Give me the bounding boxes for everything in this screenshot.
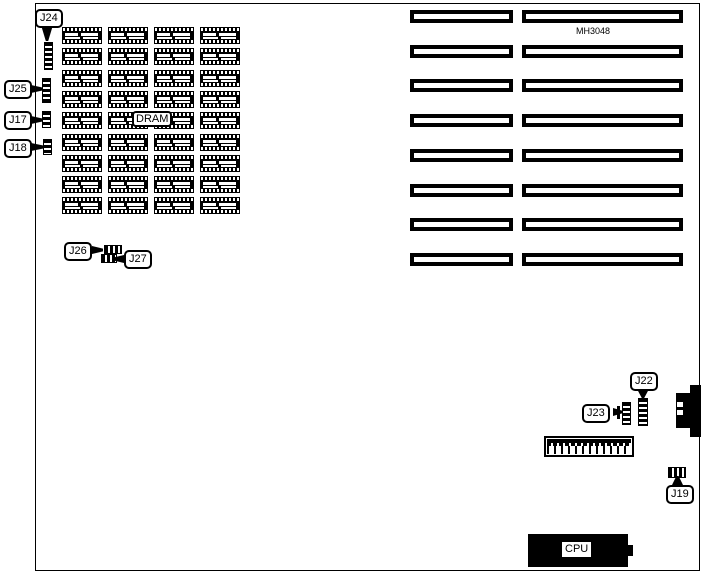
dram-chip-slot [157, 37, 172, 39]
dram-chip-slot [175, 144, 190, 146]
dram-chip-slot [81, 76, 98, 79]
dram-chip-slot [111, 33, 124, 36]
dram-chip-slot [83, 122, 98, 124]
expansion-slot-long [522, 184, 683, 197]
dram-chip [62, 27, 102, 44]
dram-chip-slot [175, 165, 190, 167]
dram-chip-slot [175, 186, 190, 188]
cpu-chip: CPU [528, 534, 628, 567]
dram-chip-slot [65, 54, 78, 57]
dram-chip-slot [127, 203, 144, 206]
keyboard-connector-bottom-tab [690, 426, 701, 437]
dram-chip-slot [81, 97, 98, 100]
dram-chip [154, 176, 194, 193]
jumper-label-j23: J23 [582, 404, 610, 423]
jumper-label-j26: J26 [64, 242, 92, 261]
dram-chip-slot [65, 118, 78, 121]
dram-chip-slot [111, 76, 124, 79]
dram-chip [108, 48, 148, 65]
dram-chip-slot [157, 165, 172, 167]
expansion-slot-short [410, 184, 513, 197]
dram-chip-slot [65, 186, 80, 188]
dram-chip-slot [173, 76, 190, 79]
dram-chip-slot [203, 161, 216, 164]
dram-chip-slot [221, 165, 236, 167]
dram-chip-slot [83, 165, 98, 167]
dram-chip-slot [65, 161, 78, 164]
dram-chip-slot [157, 186, 172, 188]
dram-chip-slot [175, 37, 190, 39]
expansion-slot-long [522, 218, 683, 231]
dram-label: DRAM [132, 111, 172, 127]
dram-chip-slot [127, 33, 144, 36]
dram-chip-slot [65, 182, 78, 185]
dram-chip-slot [203, 118, 216, 121]
expansion-slot-short [410, 218, 513, 231]
dram-chip-slot [83, 186, 98, 188]
expansion-slot-long [522, 253, 683, 266]
dram-chip-slot [203, 37, 218, 39]
dram-chip-slot [219, 118, 236, 121]
jumper-label-j27: J27 [124, 250, 152, 269]
dram-chip-slot [221, 186, 236, 188]
dram-chip-slot [219, 203, 236, 206]
dram-chip-slot [157, 101, 172, 103]
dram-chip-slot [221, 144, 236, 146]
dram-chip-slot [157, 140, 170, 143]
dram-chip-slot [83, 144, 98, 146]
dram-chip-slot [81, 161, 98, 164]
dram-chip-slot [111, 54, 124, 57]
dram-chip-slot [111, 101, 126, 103]
dram-chip-slot [157, 203, 170, 206]
dram-chip-slot [111, 122, 126, 124]
dram-chip [108, 134, 148, 151]
dram-chip-slot [127, 76, 144, 79]
dram-chip-slot [127, 182, 144, 185]
dram-chip-slot [219, 161, 236, 164]
expansion-slot-long [522, 79, 683, 92]
dram-chip-slot [157, 207, 172, 209]
dram-chip [108, 27, 148, 44]
dram-chip [200, 134, 240, 151]
dram-chip-slot [175, 207, 190, 209]
dram-chip-slot [111, 144, 126, 146]
expansion-slot-short [410, 45, 513, 58]
dram-chip-slot [129, 80, 144, 82]
expansion-slot-long [522, 149, 683, 162]
dram-chip-slot [81, 140, 98, 143]
dram-chip-slot [65, 37, 80, 39]
keyboard-connector-hole [677, 410, 683, 415]
dram-chip [200, 27, 240, 44]
dram-chip-slot [173, 33, 190, 36]
dram-chip-slot [111, 97, 124, 100]
dram-chip-slot [203, 207, 218, 209]
expansion-slot-short [410, 253, 513, 266]
dram-chip-slot [157, 33, 170, 36]
dram-chip-slot [129, 58, 144, 60]
jumper-label-j19: J19 [666, 485, 694, 504]
dram-chip-slot [65, 58, 80, 60]
dram-chip-grid [62, 27, 302, 217]
dram-chip-slot [127, 97, 144, 100]
dram-chip-slot [203, 80, 218, 82]
dram-chip-slot [203, 182, 216, 185]
dram-chip [62, 134, 102, 151]
dram-chip-slot [219, 33, 236, 36]
dram-chip-slot [157, 80, 172, 82]
dram-chip-slot [221, 80, 236, 82]
dram-chip-slot [111, 182, 124, 185]
dram-chip-slot [203, 122, 218, 124]
dram-chip-slot [221, 122, 236, 124]
dram-chip-slot [81, 118, 98, 121]
dram-chip-slot [173, 161, 190, 164]
dram-chip-slot [65, 33, 78, 36]
dram-chip-slot [111, 118, 124, 121]
dram-chip-slot [65, 101, 80, 103]
dram-chip-slot [129, 37, 144, 39]
dram-chip [62, 48, 102, 65]
dram-chip [108, 70, 148, 87]
dram-chip-slot [203, 101, 218, 103]
dram-chip [62, 70, 102, 87]
dram-chip [62, 91, 102, 108]
keyboard-connector-hole [677, 402, 683, 407]
dram-chip-slot [203, 33, 216, 36]
dram-chip-slot [219, 140, 236, 143]
jumper-label-j25: J25 [4, 80, 32, 99]
dram-chip-slot [111, 203, 124, 206]
dram-chip-slot [203, 186, 218, 188]
jumper-label-j18: J18 [4, 139, 32, 158]
dram-chip-slot [111, 58, 126, 60]
dram-chip-slot [175, 101, 190, 103]
dram-chip-slot [203, 58, 218, 60]
dram-chip-slot [157, 144, 172, 146]
motherboard-diagram: J24 J25 J17 J18 DRAM J26 J27 MH3048 J22 … [0, 0, 708, 577]
dram-chip-slot [83, 37, 98, 39]
dram-chip [200, 70, 240, 87]
dram-chip-slot [221, 207, 236, 209]
dram-chip [154, 27, 194, 44]
dram-chip-slot [127, 54, 144, 57]
dram-chip-slot [83, 80, 98, 82]
expansion-slot-long [522, 114, 683, 127]
cpu-label: CPU [562, 542, 591, 557]
dram-chip [108, 91, 148, 108]
dram-chip [200, 91, 240, 108]
dram-chip [108, 176, 148, 193]
dram-chip-slot [111, 165, 126, 167]
dram-chip-slot [65, 140, 78, 143]
dram-chip-slot [173, 97, 190, 100]
jumper-j24 [44, 42, 53, 70]
dram-chip-slot [173, 140, 190, 143]
dram-chip-slot [111, 37, 126, 39]
dram-chip-slot [221, 101, 236, 103]
jumper-label-j17: J17 [4, 111, 32, 130]
dram-chip-slot [173, 54, 190, 57]
dram-chip [108, 197, 148, 214]
dram-chip-slot [111, 140, 124, 143]
jumper-label-j22: J22 [630, 372, 658, 391]
dram-chip-slot [157, 76, 170, 79]
dram-chip-slot [127, 161, 144, 164]
jumper-j22 [638, 398, 648, 426]
dram-chip-slot [129, 165, 144, 167]
dram-chip-slot [83, 207, 98, 209]
dram-chip-slot [129, 186, 144, 188]
dram-chip-slot [65, 97, 78, 100]
dram-chip [200, 176, 240, 193]
dram-chip [62, 176, 102, 193]
jumper-j17 [42, 111, 51, 128]
dram-chip-slot [81, 203, 98, 206]
dram-chip-slot [219, 54, 236, 57]
dram-chip-slot [127, 140, 144, 143]
dram-chip-slot [111, 161, 124, 164]
dram-chip-slot [111, 80, 126, 82]
dram-chip-slot [83, 101, 98, 103]
dram-chip-slot [129, 207, 144, 209]
dram-chip-slot [175, 122, 190, 124]
dram-chip [154, 197, 194, 214]
dram-chip [154, 134, 194, 151]
dram-chip [200, 112, 240, 129]
expansion-slot-short [410, 149, 513, 162]
dram-chip-slot [175, 80, 190, 82]
power-connector-cells [547, 446, 631, 454]
dram-chip-slot [157, 54, 170, 57]
dram-chip [154, 155, 194, 172]
dram-chip-slot [203, 144, 218, 146]
power-connector [544, 436, 634, 457]
dram-chip [62, 197, 102, 214]
dram-chip-slot [129, 144, 144, 146]
jumper-label-j24: J24 [35, 9, 63, 28]
dram-chip [200, 48, 240, 65]
dram-chip [200, 197, 240, 214]
dram-chip-slot [129, 101, 144, 103]
dram-chip-slot [203, 140, 216, 143]
dram-chip-slot [173, 118, 190, 121]
dram-chip-slot [111, 207, 126, 209]
dram-chip [154, 91, 194, 108]
dram-chip [154, 48, 194, 65]
dram-chip-slot [221, 58, 236, 60]
dram-chip-slot [157, 161, 170, 164]
dram-chip-slot [219, 97, 236, 100]
dram-chip [108, 155, 148, 172]
dram-chip-slot [65, 76, 78, 79]
keyboard-connector-top-tab [690, 385, 701, 395]
dram-chip-slot [203, 97, 216, 100]
expansion-slot-long [522, 45, 683, 58]
dram-chip-slot [65, 165, 80, 167]
jumper-j23 [622, 402, 631, 425]
dram-chip-slot [65, 203, 78, 206]
dram-chip-slot [219, 182, 236, 185]
dram-chip [200, 155, 240, 172]
dram-chip-slot [157, 182, 170, 185]
dram-chip [62, 112, 102, 129]
dram-chip-slot [81, 33, 98, 36]
expansion-slot-short [410, 114, 513, 127]
dram-chip-slot [65, 80, 80, 82]
dram-chip [154, 70, 194, 87]
cpu-chip-tab [628, 545, 633, 556]
dram-chip-slot [173, 182, 190, 185]
dram-chip-slot [65, 144, 80, 146]
expansion-slot-long [522, 10, 683, 23]
dram-chip-slot [203, 203, 216, 206]
jumper-j25 [42, 78, 51, 103]
dram-chip [62, 155, 102, 172]
dram-chip-slot [81, 54, 98, 57]
dram-chip-slot [111, 186, 126, 188]
dram-chip-slot [203, 54, 216, 57]
dram-chip-slot [203, 165, 218, 167]
dram-chip-slot [221, 37, 236, 39]
jumper-j18 [43, 139, 52, 155]
dram-chip-slot [219, 76, 236, 79]
jumper-j26 [104, 245, 122, 254]
expansion-slot-short [410, 79, 513, 92]
dram-chip-slot [81, 182, 98, 185]
model-number: MH3048 [563, 26, 623, 36]
dram-chip-slot [157, 97, 170, 100]
dram-chip-slot [83, 58, 98, 60]
dram-chip-slot [203, 76, 216, 79]
dram-chip-slot [157, 58, 172, 60]
dram-chip-slot [65, 207, 80, 209]
dram-chip-slot [173, 203, 190, 206]
dram-chip-slot [175, 58, 190, 60]
dram-chip-slot [65, 122, 80, 124]
expansion-slot-short [410, 10, 513, 23]
